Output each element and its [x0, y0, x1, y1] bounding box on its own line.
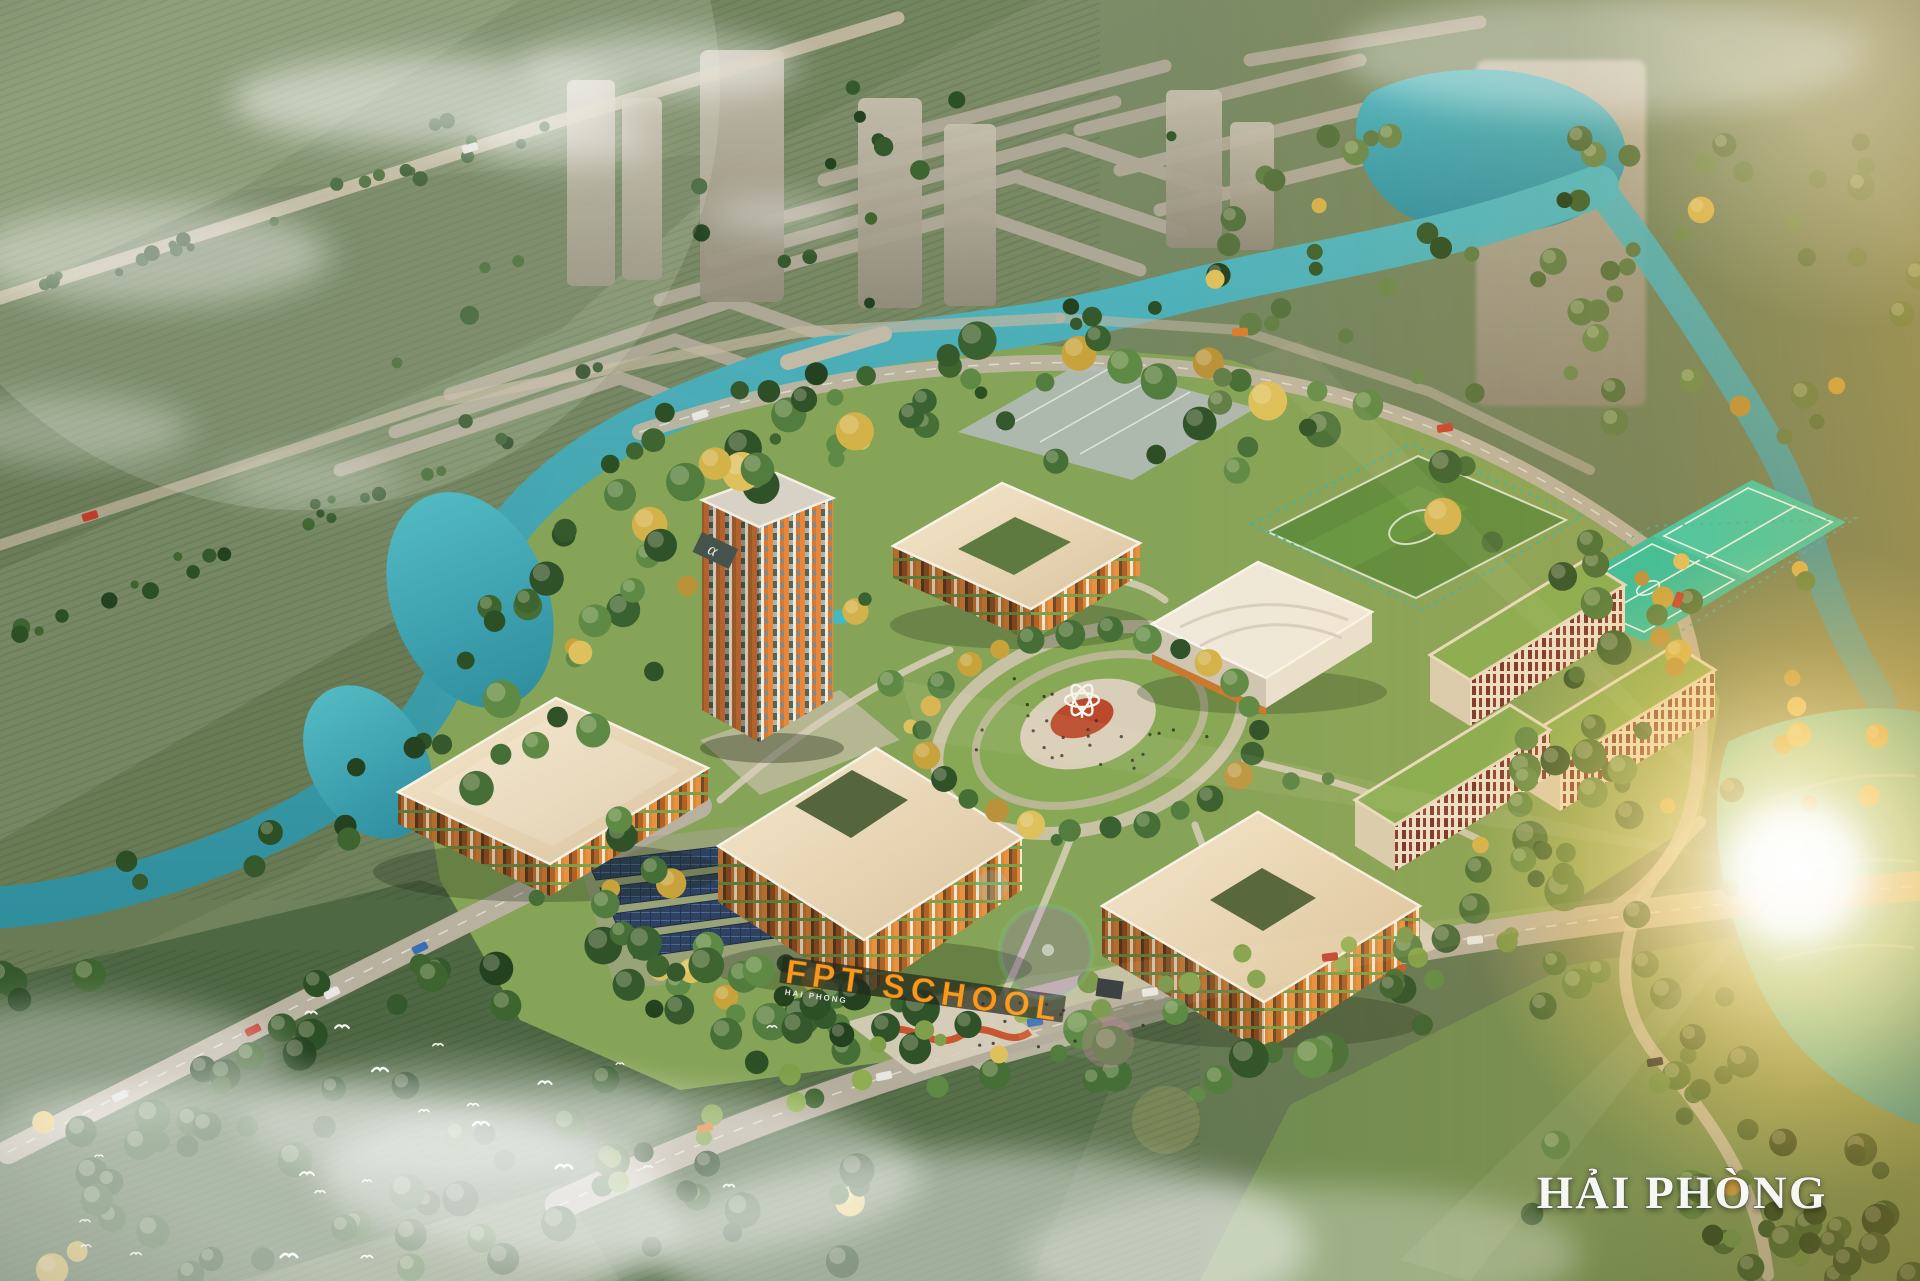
vignette: [0, 0, 1920, 1281]
aerial-campus-render: α FPT SCHOOL: [0, 0, 1920, 1281]
location-watermark: HẢI PHÒNG: [1537, 1167, 1828, 1219]
